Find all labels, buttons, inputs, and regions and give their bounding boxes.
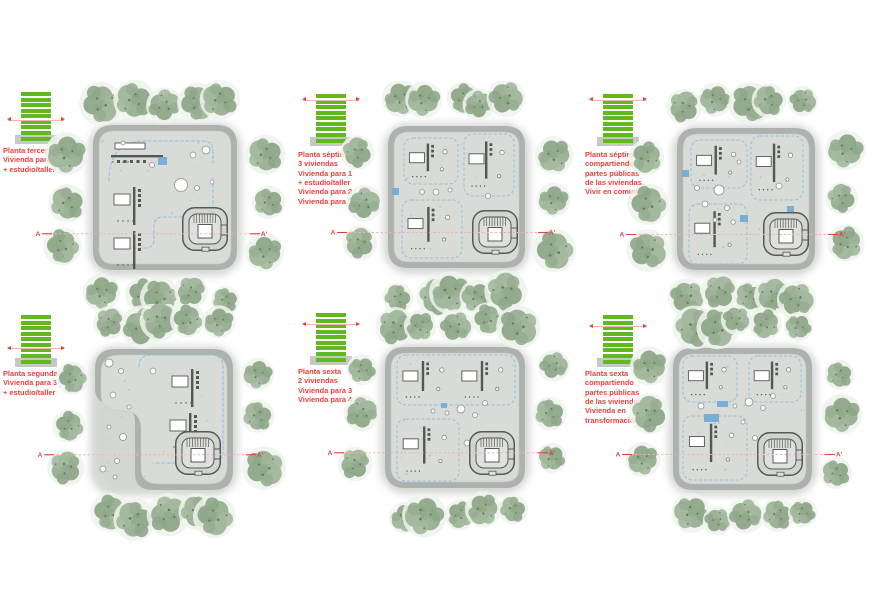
plan-tile: Planta sexta compartiendo partes pública… xyxy=(0,0,876,615)
section-marker-a: A xyxy=(616,452,621,459)
level-arrow-left xyxy=(589,324,593,328)
section-marker-a-prime: A' xyxy=(836,452,843,459)
floor-plan-drawing: AA' xyxy=(598,303,876,542)
blue-element xyxy=(717,401,728,407)
sheet: Planta tercera Vivienda para 5 + estudio… xyxy=(0,0,876,615)
blue-element xyxy=(704,414,719,422)
